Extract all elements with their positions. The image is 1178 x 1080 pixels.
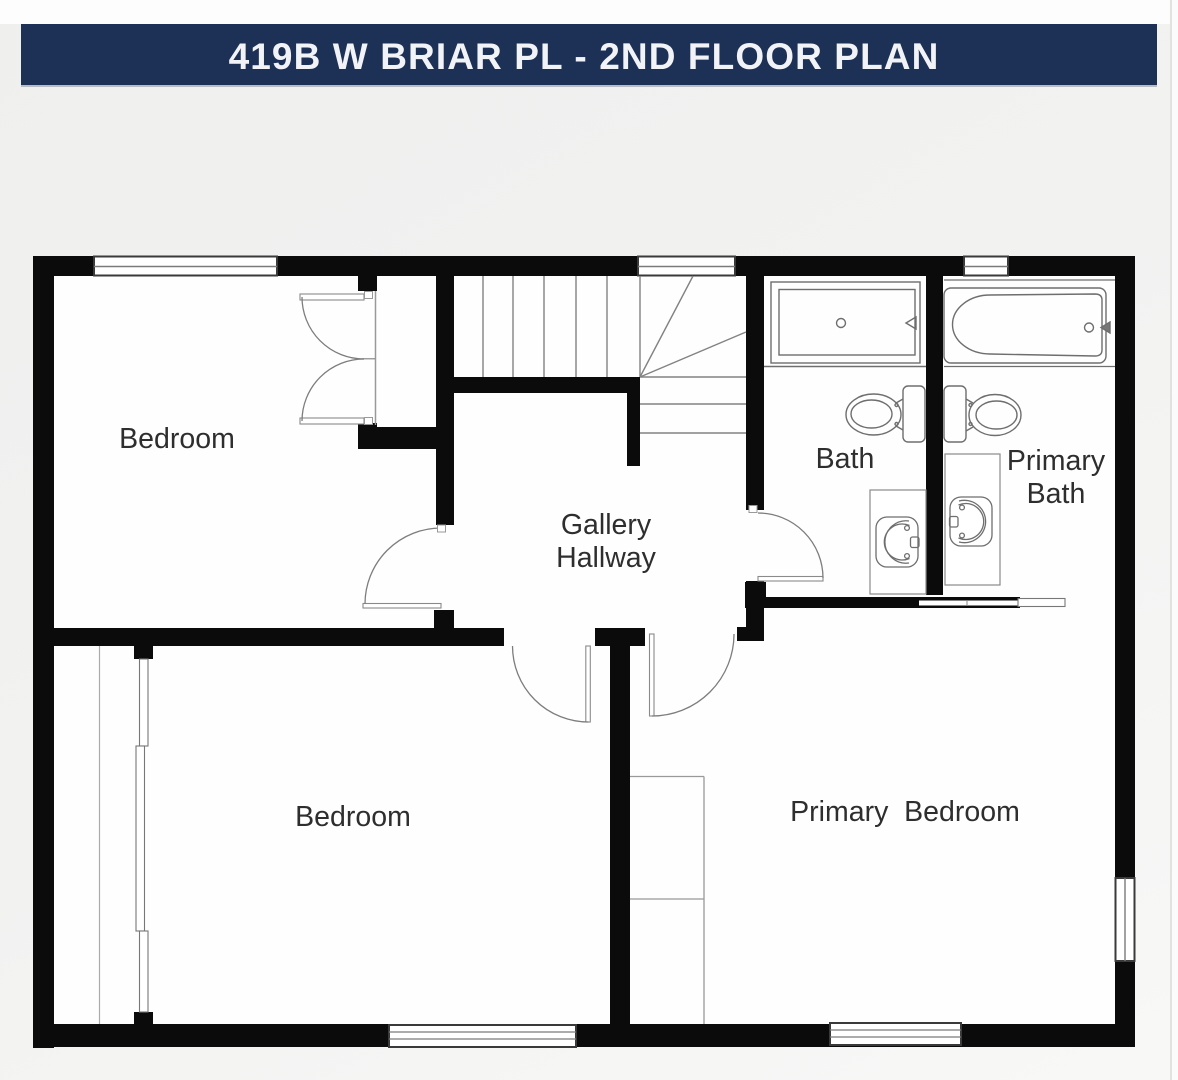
svg-text:Bath: Bath	[816, 443, 875, 475]
svg-text:Bedroom: Bedroom	[295, 801, 411, 833]
svg-text:Primary: Primary	[1007, 445, 1106, 477]
svg-text:Gallery: Gallery	[561, 509, 652, 541]
svg-text:Primary Bedroom: Primary Bedroom	[790, 796, 1020, 828]
svg-text:Bedroom: Bedroom	[119, 423, 235, 455]
svg-text:Bath: Bath	[1027, 478, 1086, 510]
svg-text:Hallway: Hallway	[556, 542, 657, 574]
